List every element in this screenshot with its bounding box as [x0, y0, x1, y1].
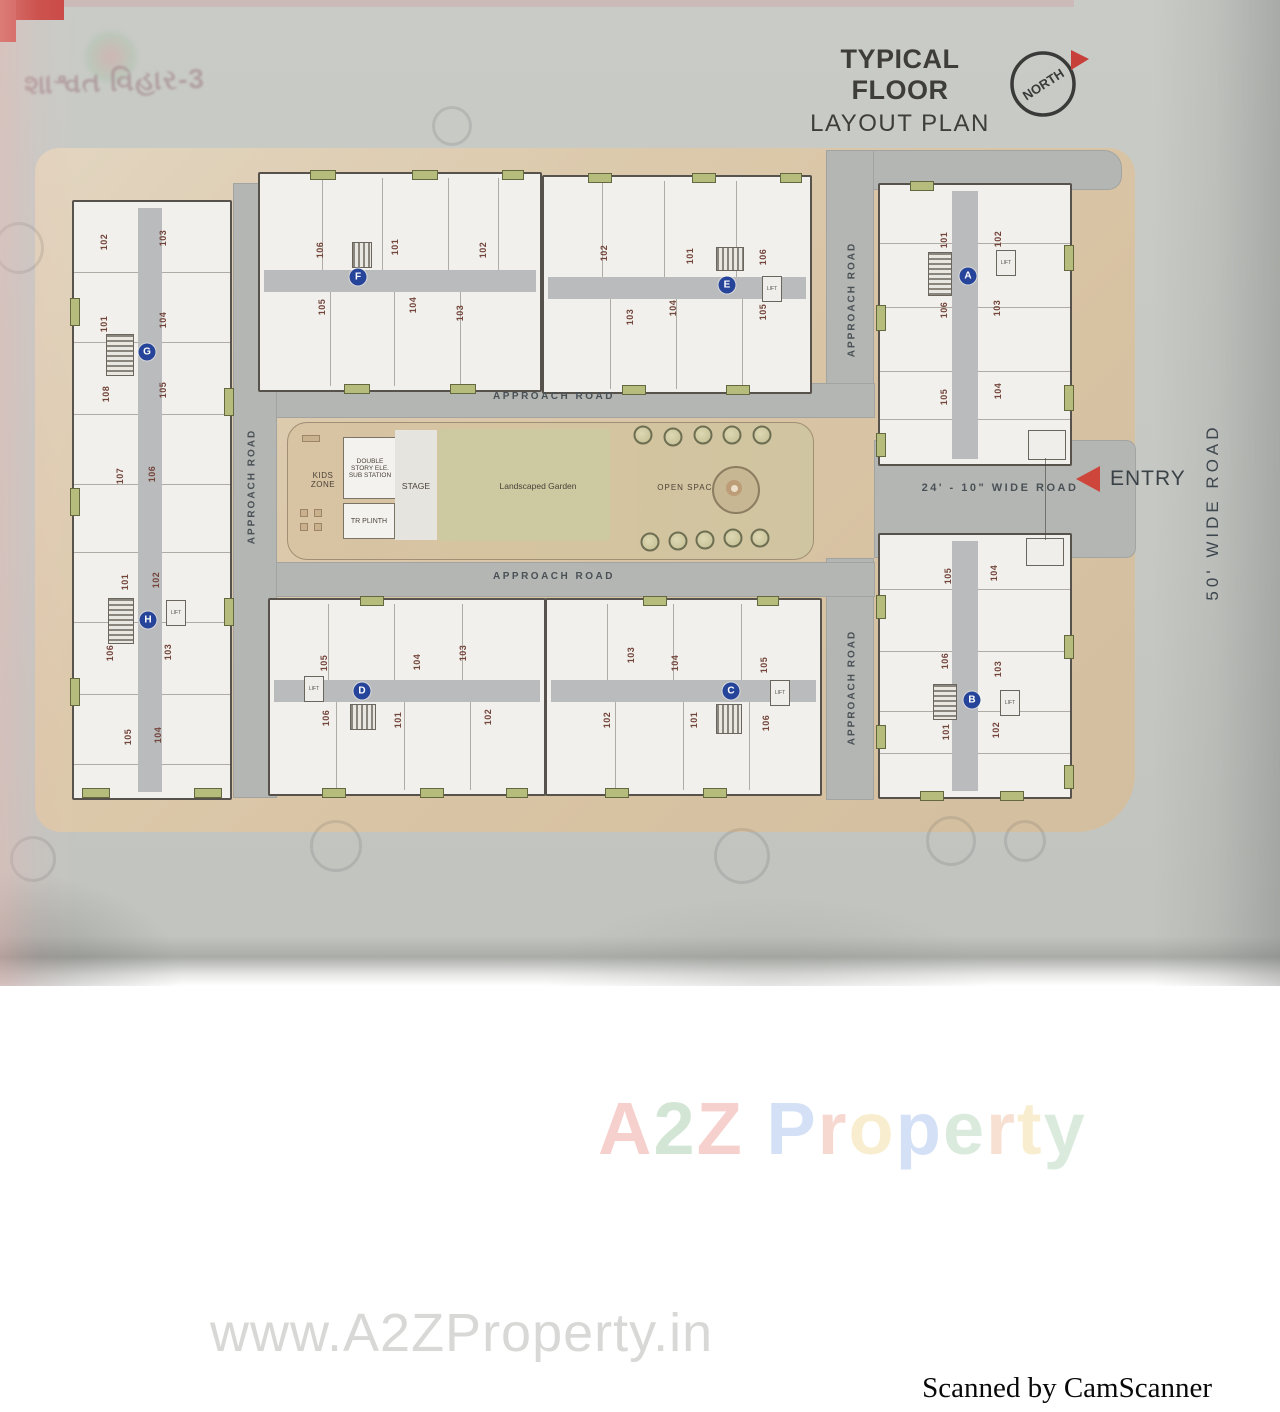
tree-icon [664, 428, 683, 447]
scan-artifact [10, 836, 56, 882]
scan-artifact [310, 820, 362, 872]
unit-label-a-104: 104 [993, 383, 1003, 400]
unit-label-c-106: 106 [761, 715, 771, 732]
block-badge-a: A [960, 268, 977, 285]
watermark-letter: A [598, 1087, 653, 1170]
entry-label: ENTRY [1110, 467, 1186, 491]
unit-label-d-101: 101 [393, 712, 403, 729]
watermark-letter: y [1044, 1087, 1087, 1170]
unit-label-e-102: 102 [599, 245, 609, 262]
drawing-title: TYPICAL FLOOR LAYOUT PLAN [795, 44, 1005, 138]
tree-icon [634, 426, 653, 445]
lift-box: LIFT [770, 680, 790, 706]
unit-label-b-105: 105 [943, 568, 953, 585]
tree-icon [723, 426, 742, 445]
wide-road-50-label: 50' WIDE ROAD [1203, 382, 1223, 642]
compass-north-label: NORTH [1020, 66, 1067, 104]
unit-label-a-106: 106 [939, 302, 949, 319]
watermark-letter: Z [697, 1087, 744, 1170]
project-brand-mark: શાશ્વત વિહાર-3 [23, 63, 205, 102]
scan-artifact [432, 106, 472, 146]
staircase-f [352, 242, 372, 268]
lift-box: LIFT [304, 676, 324, 702]
unit-label-a-102: 102 [993, 231, 1003, 248]
block-badge-h: H [140, 612, 157, 629]
scan-artifact [926, 816, 976, 866]
tree-icon [669, 532, 688, 551]
watermark-letter: p [896, 1087, 943, 1170]
unit-label-d-106: 106 [321, 710, 331, 727]
unit-label-d-104: 104 [412, 654, 422, 671]
entry-axis-line [1045, 458, 1046, 540]
unit-label-b-106: 106 [940, 653, 950, 670]
staircase-b [933, 684, 957, 720]
staircase-a [928, 252, 952, 296]
tree-icon [753, 426, 772, 445]
title-line-1: TYPICAL FLOOR [795, 44, 1005, 106]
tree-icon [696, 531, 715, 550]
watermark-letter: t [1017, 1087, 1044, 1170]
unit-label-a-105: 105 [939, 389, 949, 406]
unit-label-g-103: 103 [158, 230, 168, 247]
tree-icon [724, 529, 743, 548]
unit-label-g-106: 106 [147, 466, 157, 483]
scan-artifact [1004, 820, 1046, 862]
garden-label: Landscaped Garden [478, 481, 598, 491]
a2z-property-watermark: A2Z Property [598, 1086, 1087, 1171]
building-block-f [258, 172, 542, 392]
play-equipment [300, 523, 308, 531]
lift-box: LIFT [166, 600, 186, 626]
unit-label-f-101: 101 [390, 239, 400, 256]
scan-artifact [714, 828, 770, 884]
ele-sub-station-box: DOUBLE STORY ELE. SUB STATION [343, 437, 397, 499]
tree-icon [694, 426, 713, 445]
unit-label-f-104: 104 [408, 297, 418, 314]
unit-label-b-102: 102 [991, 722, 1001, 739]
staircase-c [716, 704, 742, 734]
unit-label-h-104: 104 [153, 727, 163, 744]
building-block-a [878, 183, 1072, 466]
unit-label-h-106: 106 [105, 645, 115, 662]
photo-area: શાશ્વત વિહાર-3 TYPICAL FLOOR LAYOUT PLAN… [0, 0, 1280, 986]
block-badge-f: F [350, 269, 367, 286]
watermark-letter: o [849, 1087, 896, 1170]
unit-label-g-104: 104 [158, 312, 168, 329]
unit-label-b-103: 103 [993, 661, 1003, 678]
tree-icon [751, 529, 770, 548]
approach-road-label-left: APPROACH ROAD [247, 417, 258, 557]
unit-label-b-101: 101 [941, 724, 951, 741]
play-equipment [300, 509, 308, 517]
staircase-e [716, 247, 744, 271]
unit-label-g-101: 101 [99, 316, 109, 333]
stage-label: STAGE [395, 481, 437, 491]
watermark-letter: r [986, 1087, 1017, 1170]
approach-road-label-right-bottom: APPROACH ROAD [847, 618, 858, 758]
north-compass: NORTH [985, 28, 1115, 140]
unit-label-e-106: 106 [758, 249, 768, 266]
unit-label-e-104: 104 [668, 300, 678, 317]
unit-label-h-105: 105 [123, 729, 133, 746]
unit-label-a-101: 101 [939, 232, 949, 249]
title-line-2: LAYOUT PLAN [795, 110, 1005, 138]
watermark-letter: 2 [653, 1087, 696, 1170]
watermark-letter: P [766, 1087, 817, 1170]
approach-road-label-lower: APPROACH ROAD [233, 571, 875, 582]
unit-label-h-102: 102 [151, 572, 161, 589]
block-badge-c: C [723, 683, 740, 700]
approach-road-label-upper: APPROACH ROAD [233, 391, 875, 402]
unit-label-f-106: 106 [315, 242, 325, 259]
building-block-g-h [72, 200, 232, 800]
play-equipment [314, 509, 322, 517]
unit-label-c-101: 101 [689, 712, 699, 729]
unit-label-g-108: 108 [101, 386, 111, 403]
tr-plinth-box: TR PLINTH [343, 503, 395, 539]
lift-box: LIFT [996, 250, 1016, 276]
staircase-g [106, 334, 134, 376]
watermark-letter: r [818, 1087, 849, 1170]
unit-label-c-102: 102 [602, 712, 612, 729]
unit-label-e-105: 105 [758, 304, 768, 321]
unit-label-a-103: 103 [992, 300, 1002, 317]
unit-label-c-103: 103 [626, 647, 636, 664]
tree-icon [641, 533, 660, 552]
unit-label-d-102: 102 [483, 709, 493, 726]
fountain [712, 466, 760, 514]
play-equipment [302, 435, 320, 442]
unit-label-g-105: 105 [158, 382, 168, 399]
kids-zone-label: KIDS ZONE [300, 471, 346, 489]
staircase-d [350, 704, 376, 730]
lift-box: LIFT [1000, 690, 1020, 716]
unit-label-c-104: 104 [670, 655, 680, 672]
block-badge-g: G [139, 344, 156, 361]
book-cover-edge-side [0, 0, 16, 42]
camscanner-note: Scanned by CamScanner [922, 1372, 1212, 1405]
entry-porch-a [1028, 430, 1066, 460]
lift-box: LIFT [762, 276, 782, 302]
unit-label-c-105: 105 [759, 657, 769, 674]
page-top-edge [64, 0, 1074, 7]
entry-porch-b [1026, 538, 1064, 566]
unit-label-b-104: 104 [989, 565, 999, 582]
unit-label-e-101: 101 [685, 248, 695, 265]
approach-road-label-right-top: APPROACH ROAD [847, 230, 858, 370]
unit-label-f-102: 102 [478, 242, 488, 259]
watermark-letter: e [943, 1087, 986, 1170]
unit-label-h-103: 103 [163, 644, 173, 661]
page-bottom-shadow [0, 936, 1280, 986]
unit-label-g-107: 107 [115, 468, 125, 485]
unit-label-f-105: 105 [317, 299, 327, 316]
staircase-h [108, 598, 134, 644]
a2z-url-watermark: www.A2ZProperty.in [210, 1302, 713, 1364]
block-badge-d: D [354, 683, 371, 700]
watermark-letter [744, 1087, 767, 1170]
scanned-floor-plan-page: શાશ્વત વિહાર-3 TYPICAL FLOOR LAYOUT PLAN… [0, 0, 1280, 1412]
play-equipment [314, 523, 322, 531]
unit-label-f-103: 103 [455, 305, 465, 322]
block-badge-e: E [719, 277, 736, 294]
unit-label-d-103: 103 [458, 645, 468, 662]
unit-label-e-103: 103 [625, 309, 635, 326]
unit-label-g-102: 102 [99, 234, 109, 251]
north-arrow-icon [1071, 50, 1089, 70]
entry-arrow-icon [1076, 466, 1100, 492]
site-plan: KIDS ZONE DOUBLE STORY ELE. SUB STATION … [35, 148, 1135, 832]
unit-label-d-105: 105 [319, 655, 329, 672]
building-block-b [878, 533, 1072, 799]
block-badge-b: B [964, 692, 981, 709]
unit-label-h-101: 101 [120, 574, 130, 591]
